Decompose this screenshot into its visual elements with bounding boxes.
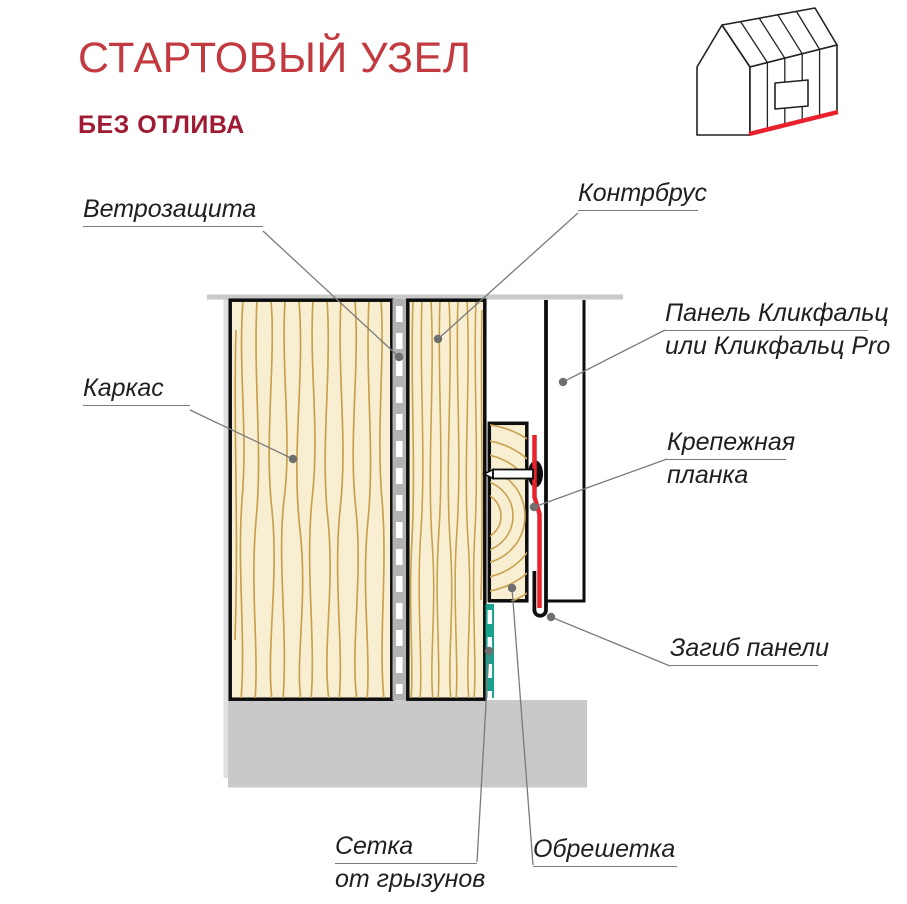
label-panel-line2: или Кликфальц Pro: [665, 331, 868, 360]
label-rodent-mesh: Сетка от грызунов: [335, 833, 477, 893]
leader-panel: [563, 330, 665, 382]
wall-edge-line: [224, 299, 229, 778]
label-mesh-line1: Сетка: [335, 833, 477, 864]
label-mesh-line2: от грызунов: [335, 864, 477, 893]
page: СТАРТОВЫЙ УЗЕЛ БЕЗ ОТЛИВА Ветрозащита Ко…: [0, 0, 907, 904]
label-panel-line1: Панель Кликфальц: [665, 300, 868, 331]
label-panel-bend-text: Загиб панели: [670, 635, 818, 666]
panel-profile: [534, 300, 585, 616]
leader-fastening: [534, 459, 667, 507]
label-frame: Каркас: [83, 375, 190, 406]
label-fastening-line2: планка: [667, 460, 786, 489]
screw: [484, 470, 533, 479]
leader-counter-batten: [438, 213, 578, 339]
label-fastening-strip: Крепежная планка: [667, 429, 786, 489]
frame-block: [230, 300, 392, 700]
label-frame-text: Каркас: [83, 375, 190, 406]
counter-batten-block: [408, 300, 485, 700]
label-panel-bend: Загиб панели: [670, 635, 818, 666]
label-counter-batten: Контрбрус: [578, 180, 698, 211]
house-window: [775, 80, 808, 109]
foundation: [228, 700, 587, 788]
house-icon: [697, 8, 838, 135]
label-counter-batten-text: Контрбрус: [578, 180, 698, 211]
label-lathing: Обрешетка: [533, 836, 677, 867]
label-lathing-text: Обрешетка: [533, 836, 677, 867]
leader-panel-bend: [551, 617, 670, 666]
label-windbreak: Ветрозащита: [83, 196, 263, 227]
label-windbreak-text: Ветрозащита: [83, 196, 263, 227]
label-panel: Панель Кликфальц или Кликфальц Pro: [665, 300, 868, 360]
label-fastening-line1: Крепежная: [667, 429, 786, 460]
